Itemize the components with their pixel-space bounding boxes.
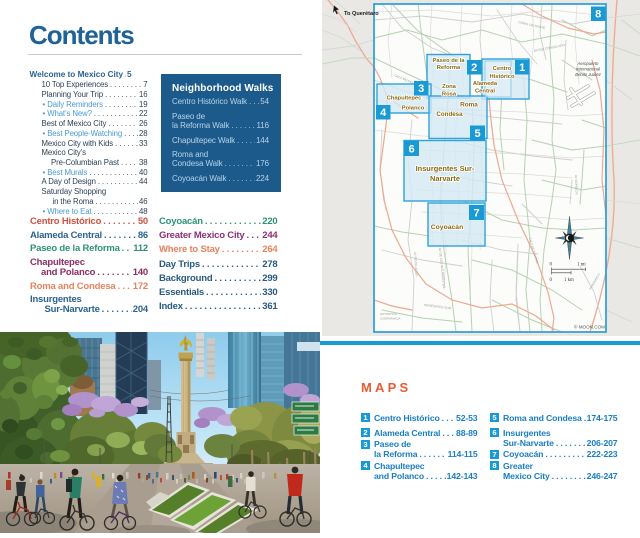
svg-text:Zona: Zona [442, 84, 457, 90]
svg-text:Insurgentes Sur-: Insurgentes Sur- [416, 164, 475, 173]
svg-text:Narvarte: Narvarte [430, 174, 460, 183]
svg-text:To Querétaro: To Querétaro [344, 11, 379, 17]
svg-text:Internacional: Internacional [576, 67, 601, 72]
svg-text:Benito Juárez: Benito Juárez [575, 72, 602, 77]
svg-text:4: 4 [380, 107, 387, 119]
svg-text:5: 5 [474, 128, 480, 140]
svg-text:Polanco: Polanco [402, 106, 425, 112]
svg-text:Roma: Roma [460, 102, 478, 109]
svg-text:Coyoacán: Coyoacán [431, 224, 463, 231]
svg-text:AUTOPISTA: AUTOPISTA [380, 312, 397, 316]
svg-text:Central: Central [475, 89, 495, 95]
svg-text:Chapultepec: Chapultepec [387, 96, 423, 102]
svg-text:Reforma: Reforma [437, 65, 461, 71]
svg-text:Paseo de la: Paseo de la [433, 58, 466, 64]
svg-text:Alameda: Alameda [473, 81, 498, 87]
svg-text:7: 7 [473, 208, 479, 220]
svg-text:6: 6 [408, 144, 414, 156]
svg-text:© MOON.COM: © MOON.COM [574, 324, 605, 330]
svg-text:Condesa: Condesa [436, 111, 463, 118]
svg-text:AV MORELOS: AV MORELOS [574, 175, 579, 195]
svg-text:1 mi: 1 mi [577, 263, 586, 268]
svg-text:1 km: 1 km [564, 278, 574, 283]
svg-text:Aeropuerto: Aeropuerto [577, 61, 599, 66]
svg-text:Rosa: Rosa [442, 92, 457, 98]
svg-text:8: 8 [595, 9, 601, 21]
svg-text:1: 1 [519, 62, 525, 74]
svg-text:Centro: Centro [493, 66, 512, 72]
svg-text:CUERNAVACA: CUERNAVACA [380, 317, 400, 321]
svg-text:2: 2 [471, 62, 477, 74]
svg-text:Histórico: Histórico [489, 74, 515, 80]
svg-text:3: 3 [418, 83, 424, 95]
